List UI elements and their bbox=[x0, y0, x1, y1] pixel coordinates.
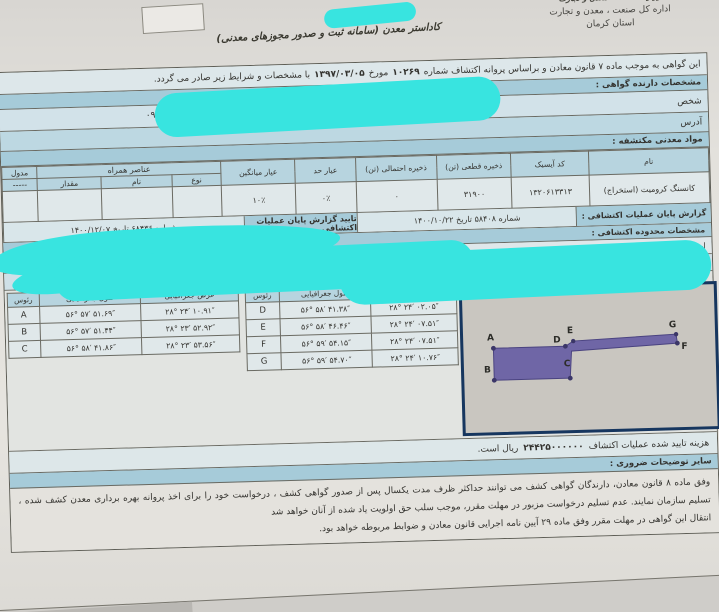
map-label-g: G bbox=[669, 320, 677, 330]
vertex-latitude: ۲۸° ۲۴′ ۱۰.۷۶″ bbox=[372, 348, 458, 367]
intro-prefix: این گواهی به موجب ماده ۷ قانون معادن و ب… bbox=[424, 59, 701, 77]
boundary-polygon-figure: A B C D E F G bbox=[462, 284, 718, 433]
person-label: شخص bbox=[677, 96, 702, 107]
scanned-certificate-photo: وزارت صنعت ، معدن و تجارت اداره کل صنعت … bbox=[0, 0, 719, 612]
ministry-header: وزارت صنعت ، معدن و تجارت اداره کل صنعت … bbox=[512, 0, 709, 32]
mineral-name: کانسنگ کرومیت (استخراج) bbox=[589, 172, 710, 206]
cost-label: هزینه تایید شده عملیات اکتشاف bbox=[589, 438, 710, 451]
map-label-e: E bbox=[567, 326, 573, 336]
col-average-grade: عیار میانگین bbox=[221, 159, 296, 185]
module-empty bbox=[2, 190, 38, 222]
element-type-empty bbox=[172, 185, 222, 217]
col-cutoff-grade: عیار حد bbox=[295, 158, 356, 184]
cost-amount: ۲۴۴۲۵۰۰۰۰۰۰ bbox=[523, 441, 584, 453]
final-report-label: گزارش پایان عملیات اکتشافی : bbox=[576, 203, 711, 226]
vertex-id: E bbox=[246, 319, 280, 337]
map-label-a: A bbox=[487, 333, 494, 343]
address-label: آدرس bbox=[680, 117, 702, 128]
average-grade: ۱۰٪ bbox=[221, 183, 296, 216]
vertex-id: G bbox=[247, 353, 281, 371]
vertex-id: D bbox=[246, 302, 280, 320]
col-definite-reserve: ذخیره قطعی (تن) bbox=[436, 153, 511, 179]
map-label-f: F bbox=[681, 342, 687, 352]
vertex-longitude: ۵۶° ۵۸′ ۴۱.۸۶″ bbox=[40, 338, 142, 358]
vertex-id: C bbox=[9, 340, 41, 358]
cutoff-grade: ۰٪ bbox=[296, 182, 357, 215]
module-value: ----- bbox=[2, 178, 38, 191]
element-name-empty bbox=[101, 187, 173, 220]
map-label-d: D bbox=[553, 335, 561, 345]
permit-date: ۱۳۹۷/۰۳/۰۵ bbox=[314, 68, 365, 79]
permit-number: ۱۰۲۶۹ bbox=[392, 67, 420, 78]
province-line: استان کرمان bbox=[512, 16, 708, 31]
vertex-id: F bbox=[246, 336, 280, 354]
element-amount-empty bbox=[38, 189, 102, 222]
vertex-id: B bbox=[8, 323, 40, 341]
map-label-b: B bbox=[484, 365, 491, 375]
vertex-longitude: ۵۶° ۵۹′ ۵۴.۷۰″ bbox=[281, 350, 373, 370]
isic-code: ۱۳۲۰۶۱۳۳۱۳ bbox=[511, 175, 590, 208]
intro-suffix: با مشخصات و شرایط زیر صادر می گردد. bbox=[154, 70, 311, 84]
cost-suffix: ریال است. bbox=[477, 443, 518, 454]
boundary-polygon bbox=[493, 334, 678, 380]
col-module: مدول bbox=[2, 166, 38, 179]
definite-reserve: ۳۱۹۰۰ bbox=[437, 177, 512, 210]
map-label-c: C bbox=[564, 359, 571, 369]
col-probable-reserve: ذخیره احتمالی (تن) bbox=[355, 155, 437, 181]
boundary-map-panel: A B C D E F G bbox=[459, 281, 719, 436]
col-isic-code: کد آیسیک bbox=[511, 151, 589, 177]
vertex-latitude: ۲۸° ۲۳′ ۵۳.۵۶″ bbox=[142, 335, 240, 355]
vertex-id: A bbox=[8, 306, 40, 324]
blank-corner-box bbox=[141, 3, 205, 34]
document-page: وزارت صنعت ، معدن و تجارت اداره کل صنعت … bbox=[0, 0, 719, 612]
dated-label: مورخ bbox=[368, 68, 388, 79]
col-mineral-name: نام bbox=[588, 148, 709, 175]
probable-reserve: ۰ bbox=[356, 179, 438, 212]
col-vertex: رئوس bbox=[7, 292, 39, 307]
